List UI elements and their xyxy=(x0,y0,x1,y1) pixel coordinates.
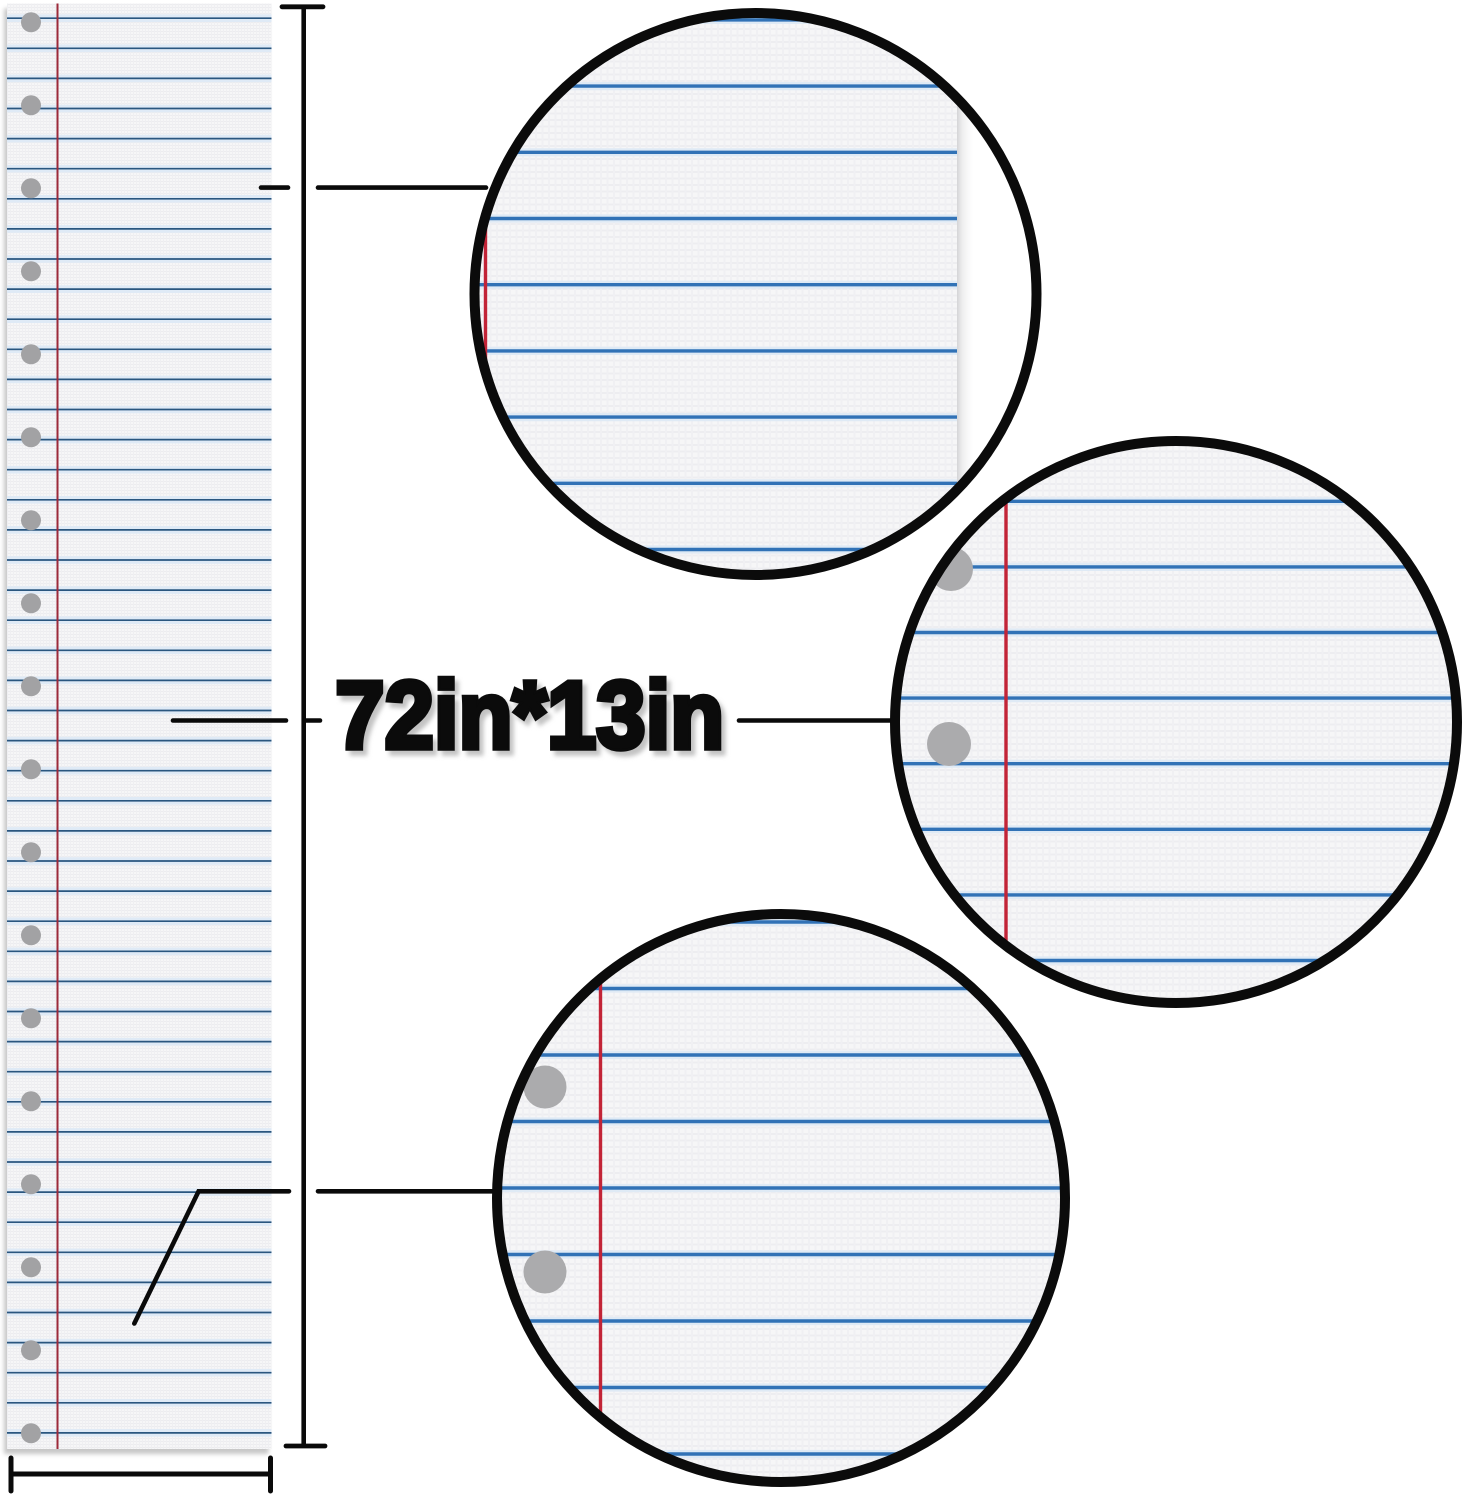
svg-text:72in*13in: 72in*13in xyxy=(335,662,724,769)
